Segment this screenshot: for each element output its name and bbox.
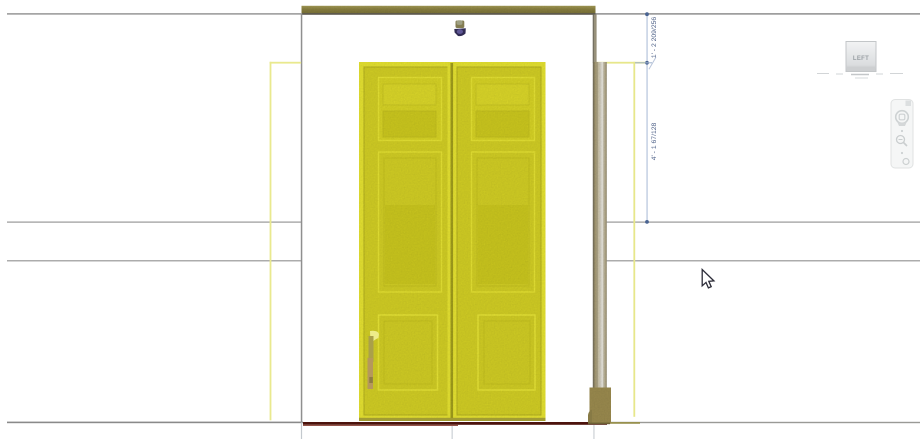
svg-text:1' - 2 209/256: 1' - 2 209/256 xyxy=(651,17,658,59)
svg-text:4' - 1 67/128: 4' - 1 67/128 xyxy=(651,122,658,160)
svg-text:LEFT: LEFT xyxy=(853,56,869,62)
